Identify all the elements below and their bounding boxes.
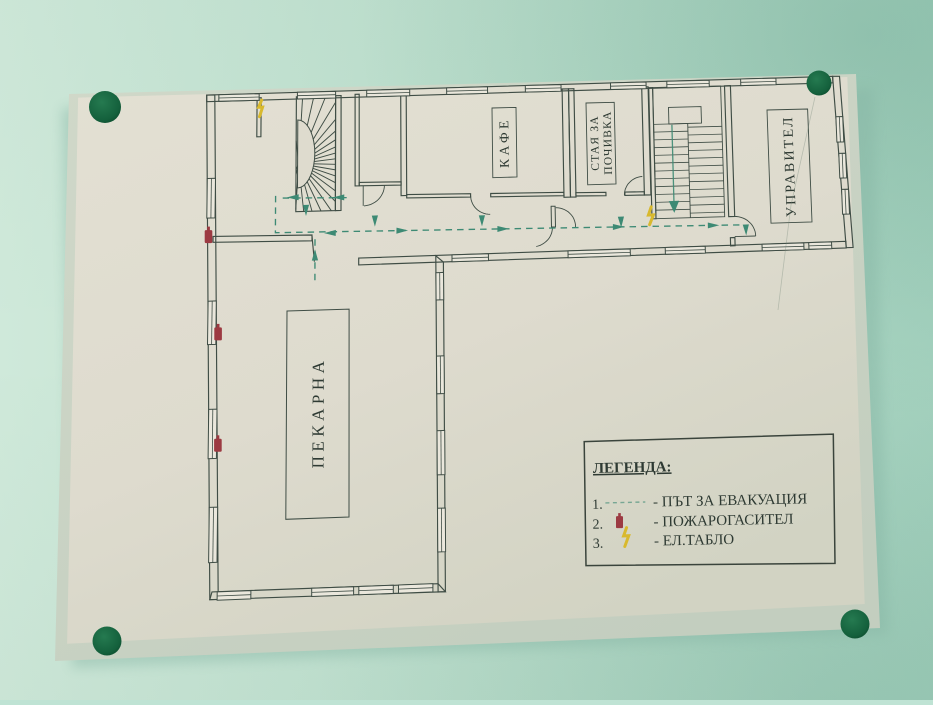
svg-text:3.: 3.: [593, 537, 604, 552]
svg-text:КАФЕ: КАФЕ: [496, 117, 512, 168]
svg-text:ПЕКАРНА: ПЕКАРНА: [309, 357, 328, 469]
svg-text:СТАЯ ЗА: СТАЯ ЗА: [589, 115, 602, 171]
svg-text:1.: 1.: [592, 498, 603, 513]
svg-text:- ЕЛ.ТАБЛО: - ЕЛ.ТАБЛО: [654, 532, 735, 550]
svg-text:ЛЕГЕНДА:: ЛЕГЕНДА:: [593, 459, 672, 477]
svg-text:ПОЧИВКА: ПОЧИВКА: [602, 110, 615, 174]
svg-text:2.: 2.: [592, 518, 603, 533]
svg-text:- ПОЖАРОГАСИТЕЛ: - ПОЖАРОГАСИТЕЛ: [653, 512, 793, 531]
svg-text:- ПЪТ ЗА ЕВАКУАЦИЯ: - ПЪТ ЗА ЕВАКУАЦИЯ: [653, 491, 808, 510]
